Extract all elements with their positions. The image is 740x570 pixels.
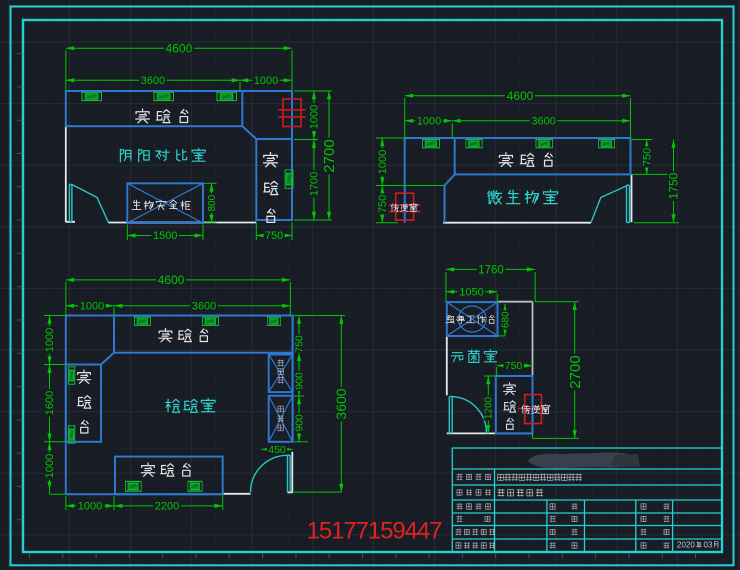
svg-text:4600: 4600 xyxy=(166,41,193,55)
svg-text:1500: 1500 xyxy=(153,230,177,242)
svg-text:3600: 3600 xyxy=(531,116,555,128)
svg-text:1200: 1200 xyxy=(484,396,495,419)
svg-text:450: 450 xyxy=(268,444,286,456)
svg-text:3600: 3600 xyxy=(333,388,349,419)
svg-text:15177159447: 15177159447 xyxy=(307,517,442,544)
svg-text:750: 750 xyxy=(641,148,653,166)
svg-text:1000: 1000 xyxy=(78,501,102,513)
svg-text:2700: 2700 xyxy=(321,139,338,172)
svg-text:750: 750 xyxy=(505,360,523,372)
svg-text:900: 900 xyxy=(294,372,306,390)
svg-text:03: 03 xyxy=(704,541,713,550)
svg-text:2020: 2020 xyxy=(677,541,695,550)
svg-text:750: 750 xyxy=(377,195,389,213)
svg-text:4600: 4600 xyxy=(507,89,534,103)
svg-text:900: 900 xyxy=(294,414,306,432)
svg-text:1000: 1000 xyxy=(377,150,389,174)
svg-text:1750: 1750 xyxy=(667,172,681,199)
svg-text:1000: 1000 xyxy=(44,328,56,352)
svg-text:2200: 2200 xyxy=(155,501,179,513)
svg-text:1050: 1050 xyxy=(459,287,483,299)
svg-text:1000: 1000 xyxy=(254,75,278,87)
svg-text:800: 800 xyxy=(207,194,218,211)
svg-text:3600: 3600 xyxy=(192,301,216,313)
svg-text:750: 750 xyxy=(294,335,306,353)
svg-text:3600: 3600 xyxy=(141,75,165,87)
svg-text:1600: 1600 xyxy=(44,391,56,415)
svg-text:1000: 1000 xyxy=(309,105,321,129)
svg-text:750: 750 xyxy=(265,230,283,242)
svg-text:1000: 1000 xyxy=(80,301,104,313)
svg-text:1760: 1760 xyxy=(478,264,504,276)
svg-text:1000: 1000 xyxy=(44,454,56,478)
svg-text:2700: 2700 xyxy=(567,355,584,388)
svg-text:1700: 1700 xyxy=(309,172,321,196)
svg-text:680: 680 xyxy=(500,311,511,328)
svg-text:1000: 1000 xyxy=(417,116,441,128)
svg-text:4600: 4600 xyxy=(158,273,185,287)
